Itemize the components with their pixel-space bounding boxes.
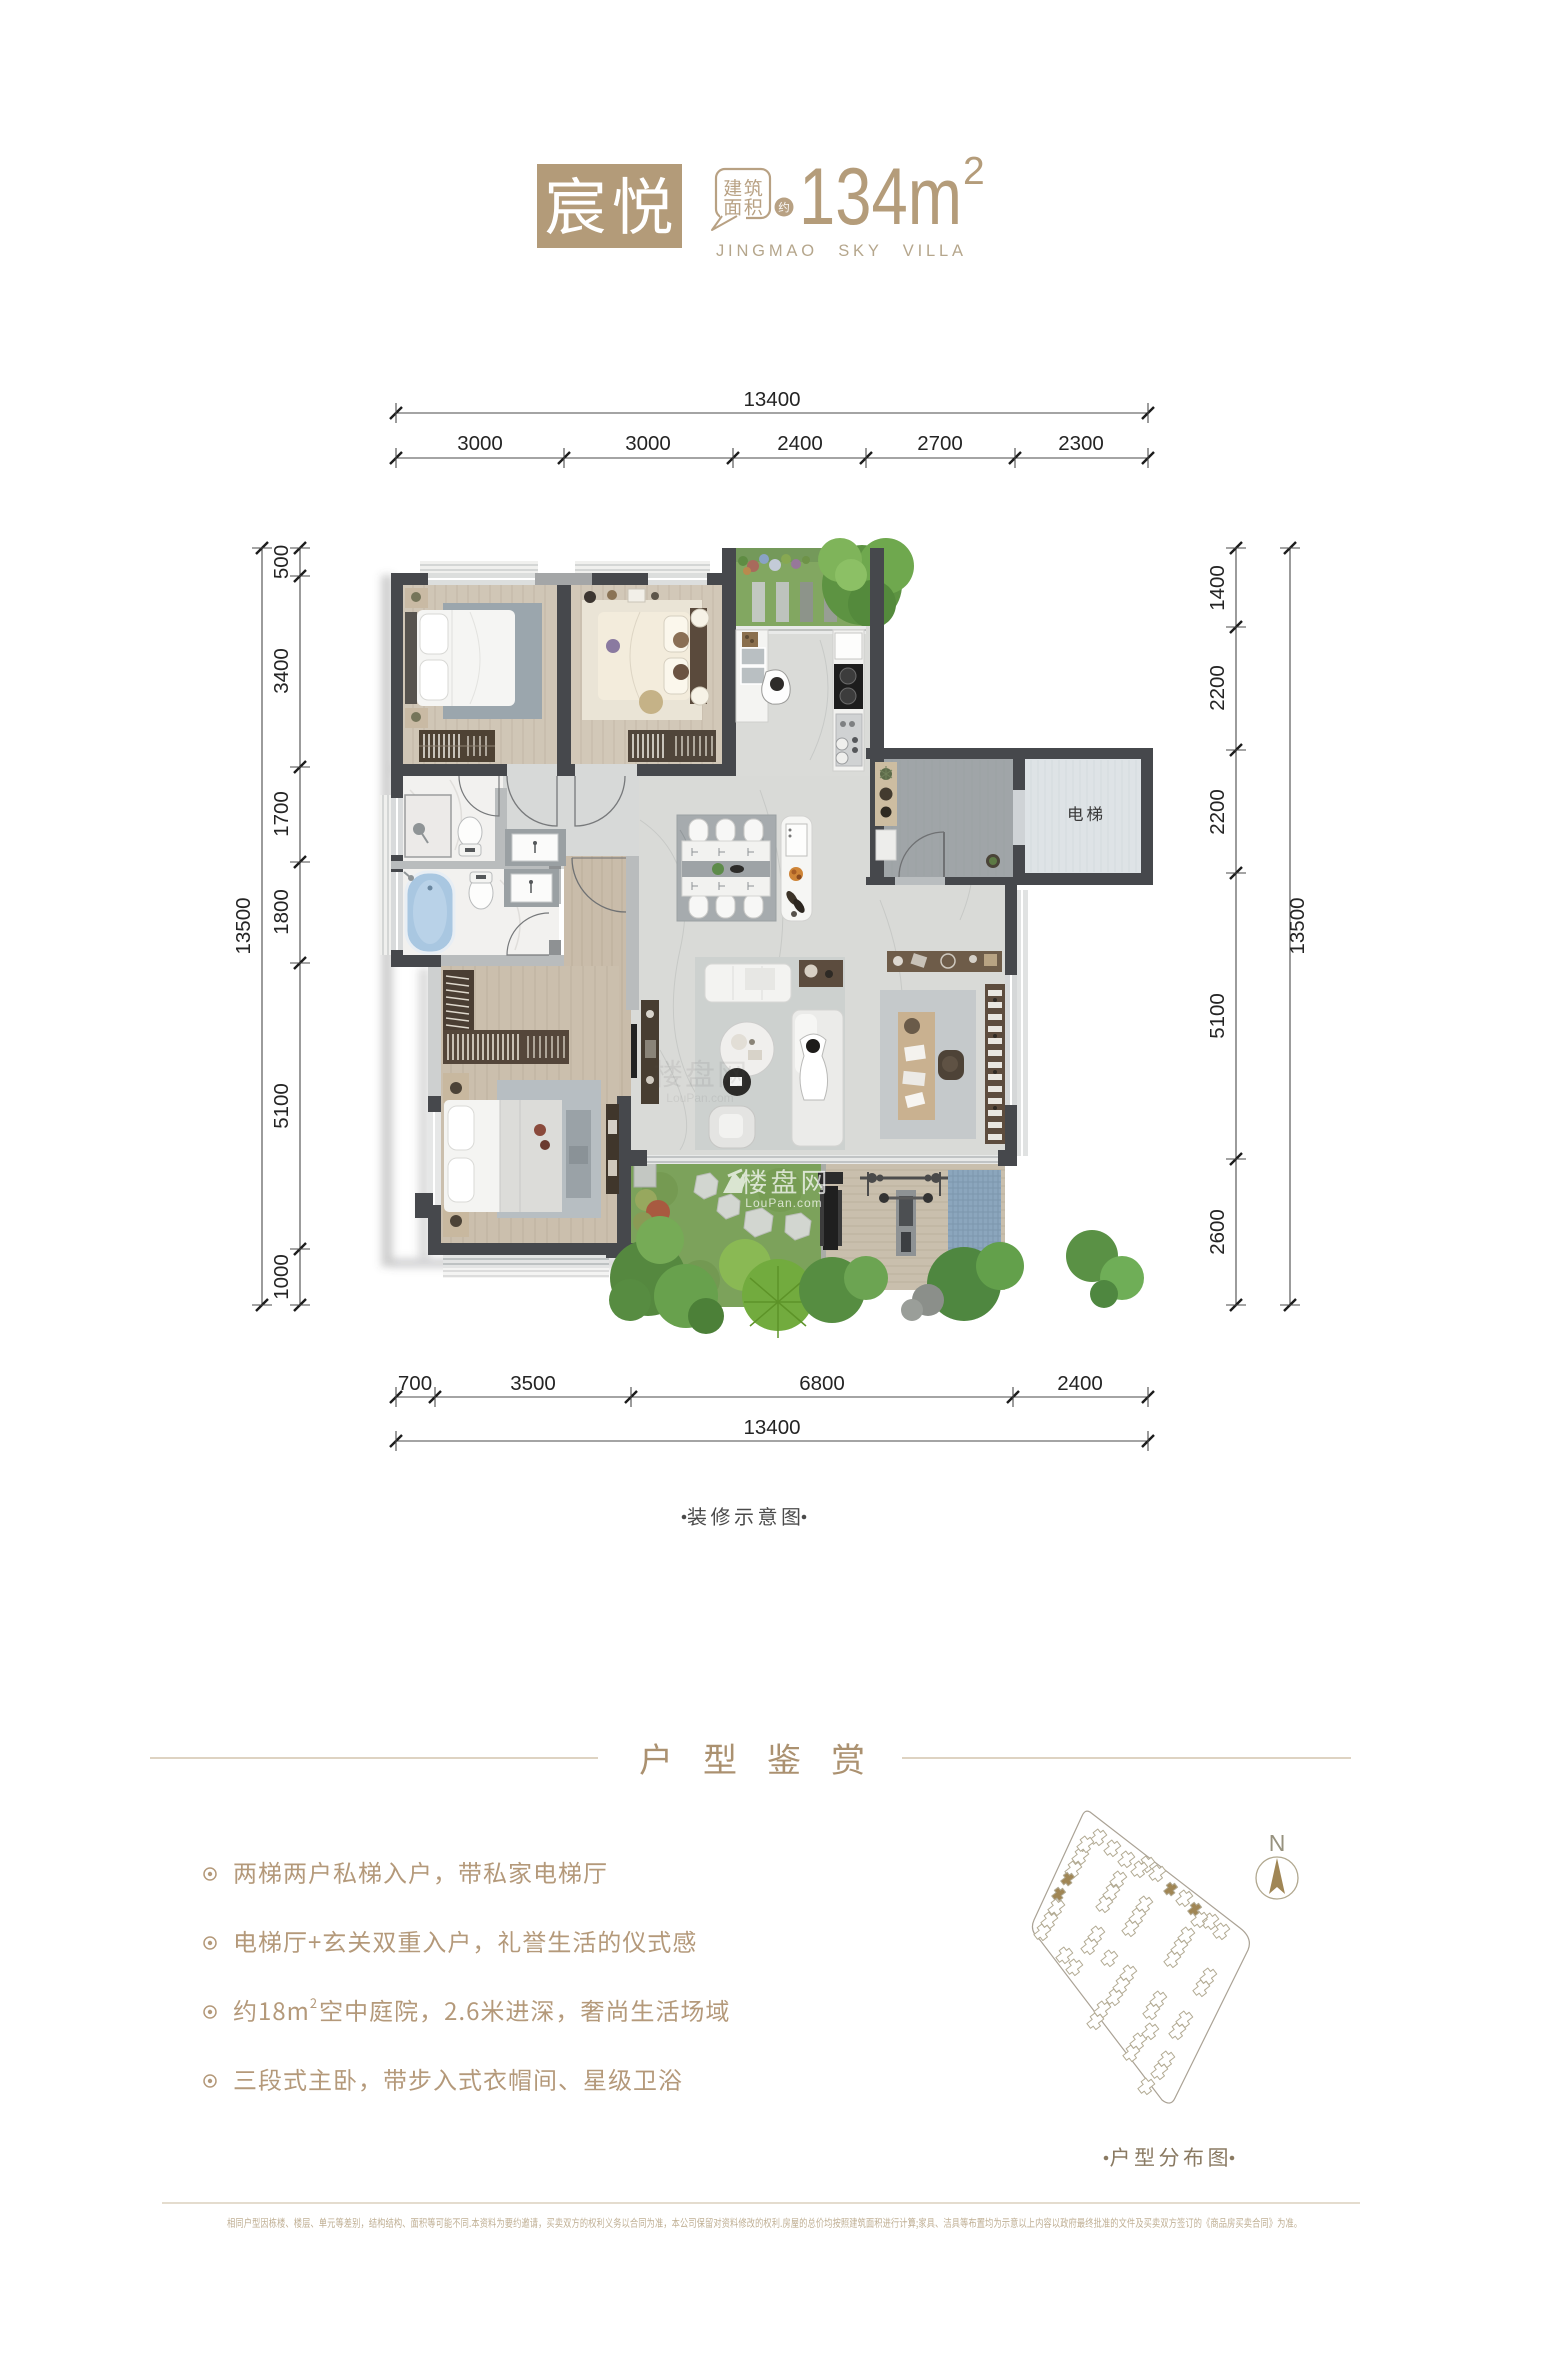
svg-text:2700: 2700	[917, 432, 963, 455]
svg-text:1400: 1400	[1206, 565, 1229, 611]
svg-text:3500: 3500	[510, 1372, 556, 1395]
svg-text:3000: 3000	[457, 432, 503, 455]
svg-text:3400: 3400	[270, 648, 293, 694]
svg-text:2: 2	[963, 150, 985, 193]
svg-text:6800: 6800	[799, 1372, 845, 1395]
svg-text:2300: 2300	[1058, 432, 1104, 455]
svg-text:JINGMAO SKY VILLA: JINGMAO SKY VILLA	[716, 242, 968, 260]
svg-text:LouPan.com: LouPan.com	[666, 1091, 733, 1105]
svg-text:1800: 1800	[270, 889, 293, 935]
svg-text:5100: 5100	[1206, 993, 1229, 1039]
svg-text:2200: 2200	[1206, 789, 1229, 835]
svg-text:1000: 1000	[270, 1254, 293, 1300]
svg-text:3000: 3000	[625, 432, 671, 455]
svg-text:1700: 1700	[270, 791, 293, 837]
svg-text:134m: 134m	[799, 152, 962, 242]
svg-text:13400: 13400	[743, 388, 800, 411]
svg-text:13500: 13500	[1286, 897, 1309, 954]
svg-text:5100: 5100	[270, 1083, 293, 1129]
svg-text:LouPan.com: LouPan.com	[745, 1196, 822, 1210]
svg-text:500: 500	[270, 545, 293, 579]
svg-text:2600: 2600	[1206, 1209, 1229, 1255]
svg-text:13500: 13500	[232, 897, 255, 954]
svg-text:13400: 13400	[743, 1416, 800, 1439]
svg-text:N: N	[1269, 1830, 1286, 1856]
svg-text:700: 700	[398, 1372, 432, 1395]
svg-text:2200: 2200	[1206, 665, 1229, 711]
svg-text:2400: 2400	[1057, 1372, 1103, 1395]
svg-text:2400: 2400	[777, 432, 823, 455]
